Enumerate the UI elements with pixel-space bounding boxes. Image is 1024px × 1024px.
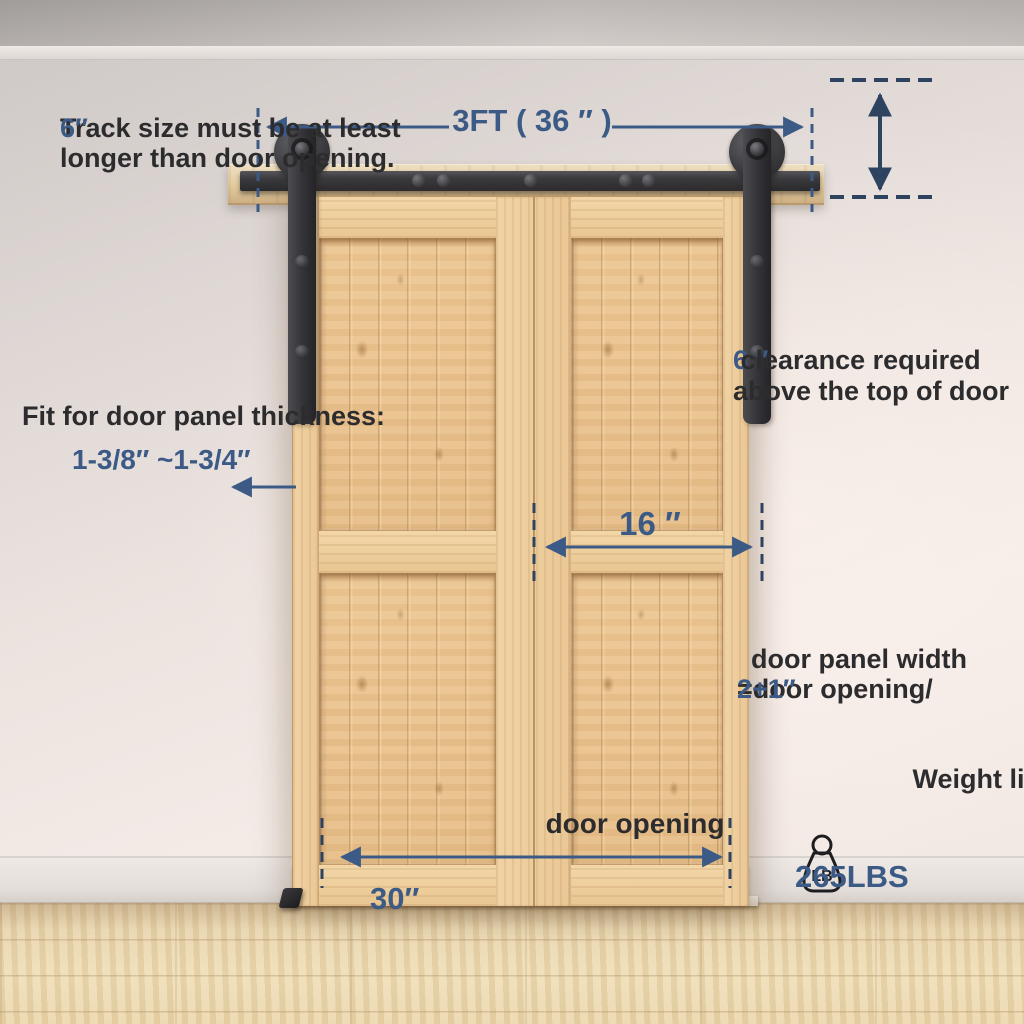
weight-limit-note: Weight limited LB 265LBS [795,733,1000,888]
track-size-note-value: 6″ [60,113,88,143]
formula-line1: door panel width [737,644,967,674]
panel-width-formula: door panel width =door opening/2+1″ [737,584,767,704]
wood-floor [0,903,1024,1024]
weight-limit-label: Weight limited [913,764,1024,795]
door-panel-upper-right [571,238,723,531]
barn-door-product-diagram: Track size must be at least 6″ longer th… [0,0,1024,1024]
thickness-label: Fit for door panel thickness: [22,401,385,432]
track-size-note-line2: longer than door opening. [60,143,394,173]
track-bolt [619,174,632,187]
track-bolt [642,174,655,187]
sliding-track-bar [240,171,820,191]
clearance-line2: above the top of door [733,376,1009,407]
ceiling-shadow-band [0,0,1024,46]
thickness-value: 1-3/8″ ~1-3/4″ [72,444,251,476]
strap-bolt [295,255,309,269]
track-bolt [524,174,537,187]
weight-limit-value: 265LBS [795,859,909,895]
crown-molding [0,46,1024,60]
track-size-note: Track size must be at least 6″ longer th… [60,53,90,173]
track-length-label: 3FT ( 36 ″ ) [444,103,620,139]
door-middle-rail-left [319,531,496,573]
door-opening-value: 30″ [370,881,419,917]
door-panel-upper-left [319,238,496,531]
wheel-hub-bolt [750,142,764,156]
clearance-note: 6 ″ clearance required above the top of … [733,283,763,407]
clearance-text: clearance required [733,345,981,376]
strap-bolt [295,345,309,359]
door-opening-note: door opening 30″ [370,776,690,904]
formula-line2-value: 2+1″ [737,674,796,704]
panel-width-dim-label: 16 ″ [560,505,740,543]
track-bolt [412,174,425,187]
door-opening-label: door opening [546,808,725,840]
strap-bolt [750,255,764,269]
track-size-note-text: Track size must be at least [60,113,408,143]
track-bolt [437,174,450,187]
